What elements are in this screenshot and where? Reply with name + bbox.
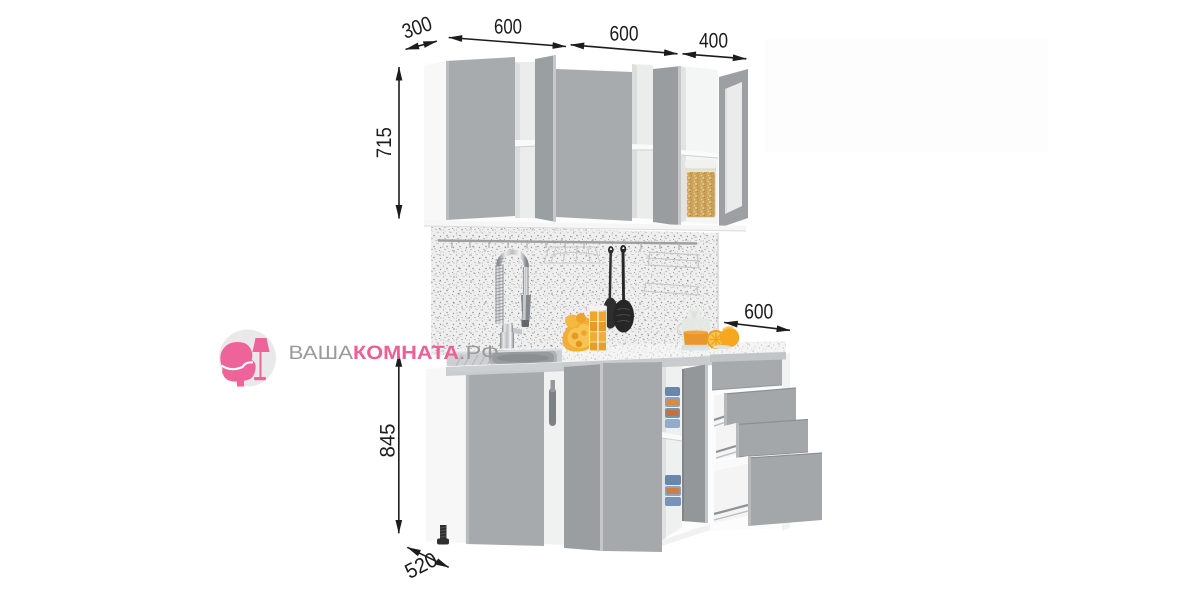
svg-text:715: 715 bbox=[373, 127, 396, 158]
svg-text:845: 845 bbox=[377, 424, 400, 458]
svg-text:КОМНАТА: КОМНАТА bbox=[353, 343, 459, 364]
svg-text:600: 600 bbox=[494, 16, 522, 39]
svg-text:ВАША: ВАША bbox=[289, 343, 354, 364]
svg-text:600: 600 bbox=[610, 23, 639, 46]
svg-text:600: 600 bbox=[744, 300, 773, 323]
svg-text:400: 400 bbox=[699, 30, 728, 53]
svg-text:.РФ: .РФ bbox=[459, 343, 499, 364]
